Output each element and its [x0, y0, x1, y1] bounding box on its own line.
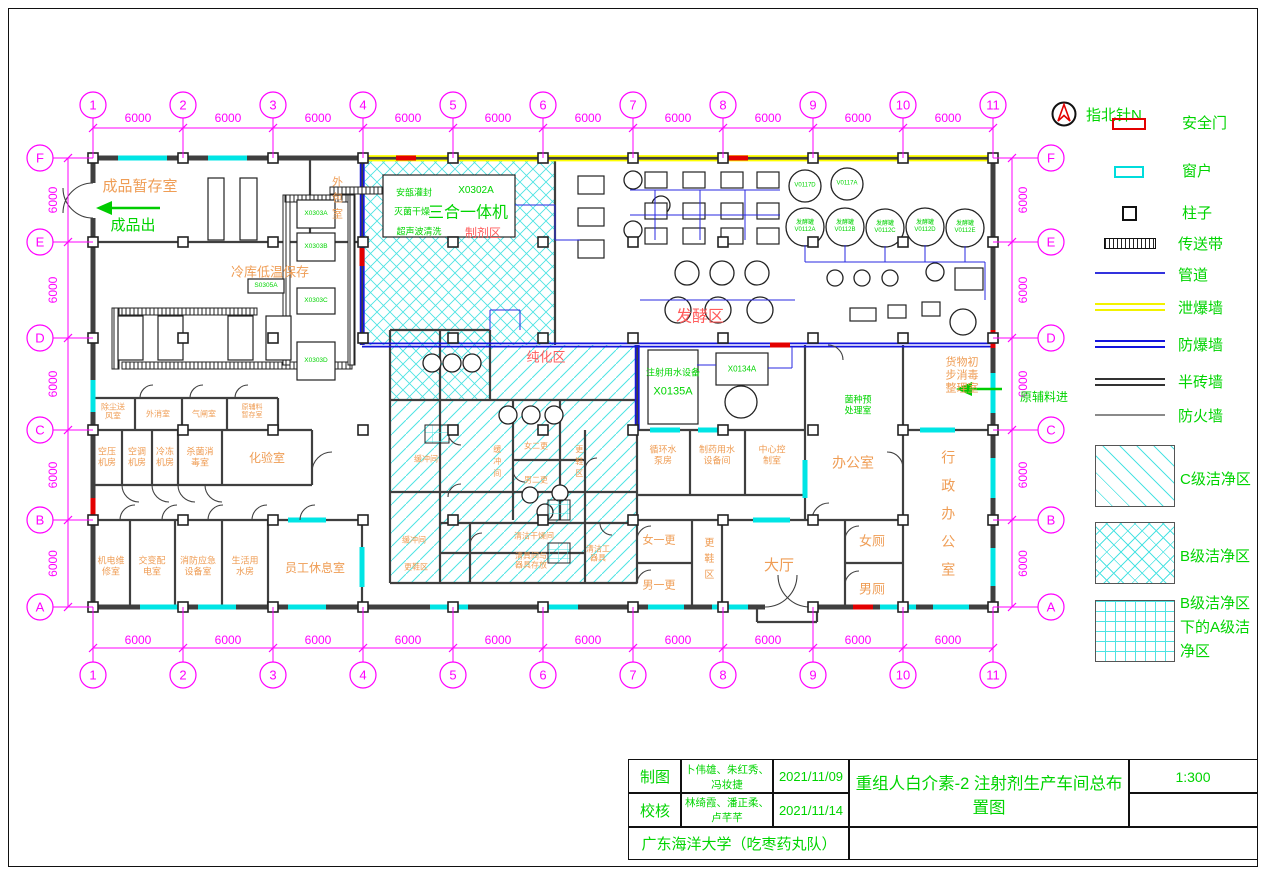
grid-bubble: 4	[359, 668, 366, 683]
machine	[118, 316, 143, 360]
tank	[826, 208, 864, 246]
tank	[725, 386, 757, 418]
machine	[297, 288, 335, 314]
drawn-by-names: 卜伟雄、朱红秀、冯妆捷	[680, 759, 774, 794]
machine	[683, 203, 705, 219]
machine	[383, 175, 515, 237]
grid-dimension: 6000	[665, 633, 692, 647]
grid-dimension: 6000	[1016, 370, 1030, 397]
grid-bubble: 2	[179, 668, 186, 683]
machine	[757, 228, 779, 244]
tank	[522, 487, 538, 503]
grid-bubble: 9	[809, 668, 816, 683]
grid-dimension: 6000	[46, 550, 60, 577]
drawn-date: 2021/11/09	[772, 759, 850, 794]
fire-wall-icon	[1095, 414, 1165, 416]
clean-a-patch	[548, 500, 570, 520]
grid-dimension: 6000	[935, 633, 962, 647]
grid-bubble: A	[36, 600, 45, 615]
grid-dimension: 6000	[1016, 276, 1030, 303]
grid-dimension: 6000	[845, 633, 872, 647]
grid-bubble: 11	[986, 98, 1000, 113]
grid-bubble: 7	[629, 98, 636, 113]
grid-dimension: 6000	[46, 276, 60, 303]
conveyor-belt	[112, 308, 257, 315]
organization: 广东海洋大学（吃枣药丸队）	[628, 826, 850, 860]
grid-bubble: 1	[89, 668, 96, 683]
tank	[747, 297, 773, 323]
grid-bubble: 10	[896, 98, 910, 113]
grid-dimension: 6000	[305, 111, 332, 125]
legend-safety-door: 安全门	[1182, 112, 1227, 136]
grid-bubble: A	[1047, 600, 1056, 615]
blast-wall-icon	[1095, 340, 1165, 342]
grid-bubble: 6	[539, 98, 546, 113]
grid-bubble: F	[36, 151, 44, 166]
grid-dimension: 6000	[665, 111, 692, 125]
machine	[645, 203, 667, 219]
grid-dimension: 6000	[125, 111, 152, 125]
machine	[721, 172, 743, 188]
grid-dimension: 6000	[485, 111, 512, 125]
vent-wall-icon2	[1095, 309, 1165, 311]
blast-wall-icon2	[1095, 346, 1165, 348]
checked-by-label: 校核	[628, 792, 682, 828]
tank	[906, 208, 944, 246]
legend-clean-a: B级洁净区 下的A级洁 净区	[1180, 592, 1250, 664]
clean-a-patch	[548, 543, 570, 563]
title-empty-cell	[848, 826, 1258, 860]
grid-dimension: 6000	[575, 633, 602, 647]
drawing-scale: 1:300	[1128, 759, 1258, 794]
machine	[955, 268, 983, 290]
tank	[926, 263, 944, 281]
clean-c-swatch	[1095, 445, 1175, 507]
grid-bubble: D	[1046, 331, 1055, 346]
grid-bubble: B	[36, 513, 45, 528]
floor-plan-drawing: 11223344556677889910101111FFEEDDCCBBAA60…	[0, 0, 1265, 874]
machine	[248, 279, 284, 293]
grid-bubble: 5	[449, 98, 456, 113]
machine	[922, 302, 940, 316]
grid-bubble: 6	[539, 668, 546, 683]
tank	[882, 270, 898, 286]
machine	[716, 353, 768, 385]
grid-dimension: 6000	[1016, 461, 1030, 488]
grid-dimension: 6000	[46, 186, 60, 213]
safety-door-icon	[1112, 118, 1146, 130]
tank	[946, 209, 984, 247]
grid-bubble: 2	[179, 98, 186, 113]
tank	[710, 261, 734, 285]
grid-dimension: 6000	[125, 633, 152, 647]
grid-dimension: 6000	[1016, 186, 1030, 213]
legend-vent-wall: 泄爆墙	[1178, 297, 1223, 321]
tank	[423, 354, 441, 372]
machine	[683, 228, 705, 244]
machine	[648, 350, 698, 424]
grid-bubble: 3	[269, 98, 276, 113]
legend-clean-b: B级洁净区	[1180, 545, 1250, 569]
machine	[297, 233, 335, 261]
tank	[545, 406, 563, 424]
vent-wall-icon	[1095, 303, 1165, 305]
tank	[443, 354, 461, 372]
half-brick-wall-icon	[1095, 378, 1165, 380]
tank	[831, 168, 863, 200]
grid-dimension: 6000	[845, 111, 872, 125]
tank	[789, 170, 821, 202]
machine	[297, 342, 335, 380]
grid-bubble: 3	[269, 668, 276, 683]
grid-dimension: 6000	[755, 633, 782, 647]
window-icon	[1114, 166, 1144, 178]
grid-bubble: D	[35, 331, 44, 346]
legend-window: 窗户	[1182, 160, 1212, 184]
machine	[683, 172, 705, 188]
clean-a-swatch	[1095, 600, 1175, 662]
grid-bubble: 5	[449, 668, 456, 683]
grid-dimension: 6000	[305, 633, 332, 647]
conveyor-icon	[1104, 238, 1156, 249]
tank	[854, 270, 870, 286]
grid-dimension: 6000	[935, 111, 962, 125]
machine	[578, 176, 604, 194]
machine	[721, 203, 743, 219]
grid-bubble: B	[1047, 513, 1056, 528]
compass-icon	[1050, 100, 1078, 128]
conveyor-belt	[348, 195, 355, 365]
tank	[463, 354, 481, 372]
drawing-title: 重组人白介素-2 注射剂生产车间总布置图	[848, 759, 1130, 828]
half-brick-wall-icon2	[1095, 384, 1165, 386]
tank	[624, 171, 642, 189]
grid-bubble: E	[36, 235, 45, 250]
grid-bubble: 4	[359, 98, 366, 113]
machine	[578, 240, 604, 258]
grid-bubble: 11	[986, 668, 1000, 683]
legend-blast-wall: 防爆墙	[1178, 334, 1223, 358]
legend-half-brick-wall: 半砖墙	[1178, 371, 1223, 395]
grid-bubble: 1	[89, 98, 96, 113]
tank	[552, 485, 568, 501]
machine	[757, 172, 779, 188]
grid-dimension: 6000	[395, 633, 422, 647]
legend-pipe: 管道	[1178, 264, 1208, 288]
grid-dimension: 6000	[755, 111, 782, 125]
machine	[645, 172, 667, 188]
legend-column: 柱子	[1182, 202, 1212, 226]
tank	[705, 297, 731, 323]
legend-conveyor: 传送带	[1178, 233, 1223, 257]
grid-dimension: 6000	[215, 111, 242, 125]
grid-bubble: 10	[896, 668, 910, 683]
tank	[522, 406, 540, 424]
grid-dimension: 6000	[1016, 550, 1030, 577]
tank	[499, 406, 517, 424]
machine	[645, 228, 667, 244]
machine	[228, 316, 253, 360]
machine	[850, 308, 876, 321]
tank	[665, 297, 691, 323]
machine	[297, 200, 335, 228]
grid-dimension: 6000	[395, 111, 422, 125]
grid-dimension: 6000	[46, 461, 60, 488]
grid-bubble: 9	[809, 98, 816, 113]
grid-bubble: 7	[629, 668, 636, 683]
machine	[578, 208, 604, 226]
machine	[208, 178, 224, 240]
checked-date: 2021/11/14	[772, 792, 850, 828]
scale-empty-cell	[1128, 792, 1258, 828]
column-icon	[1122, 206, 1137, 221]
checked-by-names: 林绮霞、潘正柔、卢芊芊	[680, 792, 774, 828]
grid-bubble: C	[1046, 423, 1055, 438]
clean-a-patch	[425, 425, 449, 443]
grid-dimension: 6000	[575, 111, 602, 125]
drawn-by-label: 制图	[628, 759, 682, 794]
floor-plan-sheet: 11223344556677889910101111FFEEDDCCBBAA60…	[0, 0, 1265, 874]
machine	[757, 203, 779, 219]
grid-bubble: 8	[719, 98, 726, 113]
machine	[240, 178, 257, 240]
machine	[888, 305, 906, 318]
legend-clean-c: C级洁净区	[1180, 468, 1251, 492]
tank	[827, 270, 843, 286]
tank	[675, 261, 699, 285]
tank	[950, 309, 976, 335]
grid-dimension: 6000	[215, 633, 242, 647]
legend-fire-wall: 防火墙	[1178, 405, 1223, 429]
grid-bubble: C	[35, 423, 44, 438]
grid-dimension: 6000	[485, 633, 512, 647]
grid-bubble: E	[1047, 235, 1056, 250]
tank	[745, 261, 769, 285]
grid-bubble: 8	[719, 668, 726, 683]
grid-dimension: 6000	[46, 370, 60, 397]
pipe-icon	[1095, 272, 1165, 274]
clean-b-swatch	[1095, 522, 1175, 584]
grid-bubble: F	[1047, 151, 1055, 166]
